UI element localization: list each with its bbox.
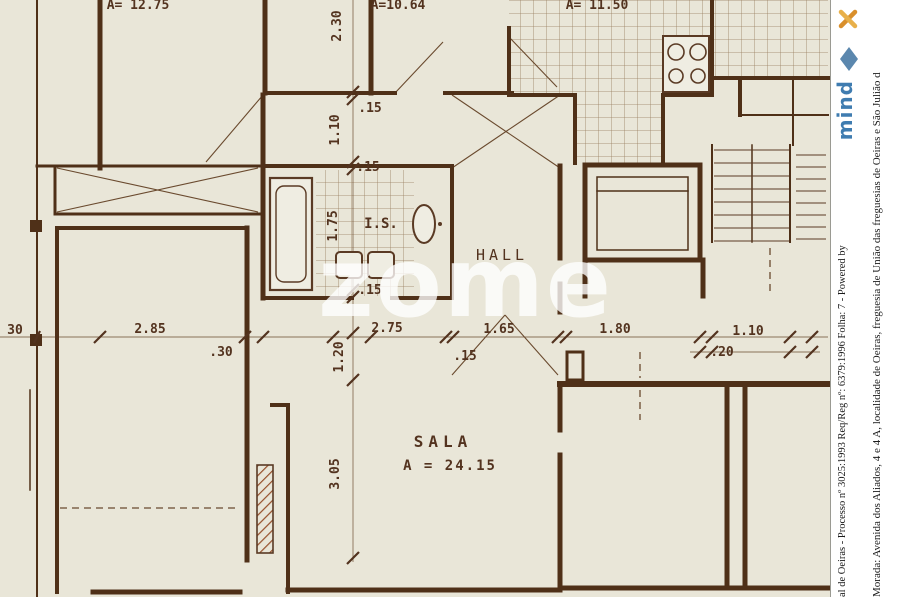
room1-area-label: A= 12.75 — [107, 0, 170, 13]
sala-room-label: SALA — [414, 432, 473, 451]
dim-2-85: 2.85 — [134, 322, 165, 337]
dim-2-75: 2.75 — [371, 321, 402, 336]
process-text: al de Oeiras - Processo nº 3025:1993 Req… — [837, 197, 848, 597]
address-text: Morada: Avenida dos Aliados, 4 e 4 A, lo… — [871, 0, 883, 597]
mind-logo: mind — [833, 80, 857, 140]
dim-1-75: 1.75 — [326, 210, 341, 241]
floor-plan-page: A= 12.75 A=10.64 A= 11.50 2.30 .15 1.10 … — [0, 0, 900, 597]
dim-2-30: 2.30 — [330, 10, 345, 41]
dim-1-10-v: 1.10 — [328, 114, 343, 145]
dim-1-20: 1.20 — [332, 341, 347, 372]
dim-15-d: .15 — [453, 349, 476, 364]
is-room-label: I.S. — [364, 216, 398, 232]
dim-1-10-h: 1.10 — [732, 324, 763, 339]
dim-15-a: .15 — [358, 101, 381, 116]
floor-plan-svg: A= 12.75 A=10.64 A= 11.50 2.30 .15 1.10 … — [0, 0, 830, 597]
sala-area-label: A = 24.15 — [403, 458, 497, 474]
diamond-icon — [839, 46, 859, 72]
dim-1-80: 1.80 — [599, 322, 630, 337]
dim-1-65: 1.65 — [483, 322, 514, 337]
room2-area-label: A=10.64 — [371, 0, 426, 13]
x-logo-icon — [837, 8, 859, 30]
dim-20: .20 — [710, 345, 734, 360]
hall-room-label: HALL — [476, 246, 528, 264]
dim-30-wall: .30 — [209, 345, 233, 360]
dim-15-c: .15 — [358, 283, 381, 298]
dim-3-05: 3.05 — [328, 458, 343, 489]
hatched-pier — [257, 465, 273, 553]
sidebar: mind al de Oeiras - Processo nº 3025:199… — [830, 0, 900, 597]
dim-30-left: 30 — [7, 323, 23, 338]
kitchen-area-label: A= 11.50 — [566, 0, 629, 13]
dim-15-b: .15 — [356, 160, 379, 175]
